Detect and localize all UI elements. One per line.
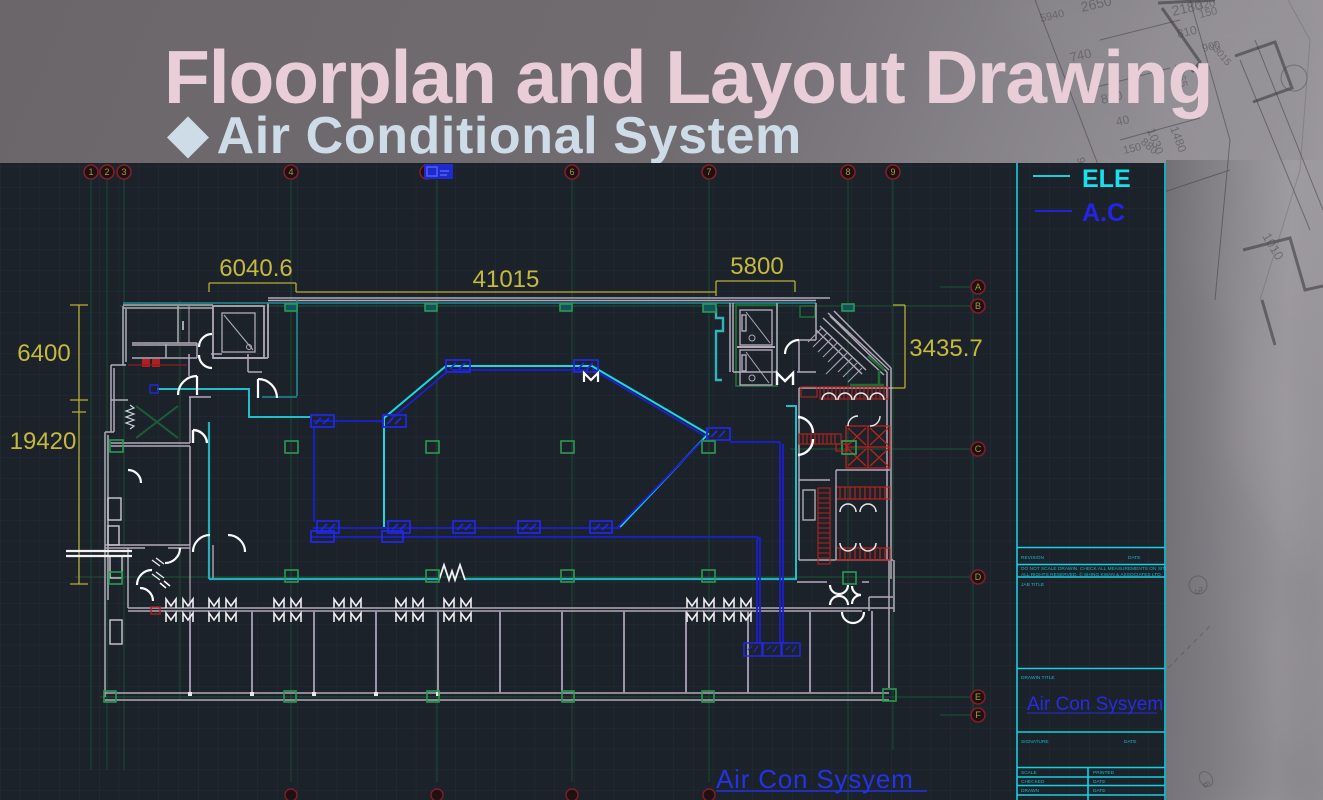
svg-text:5800: 5800 [730,253,783,280]
svg-text:DRAWN: DRAWN [1021,788,1039,794]
svg-text:ALL RIGHTS RESERVED. © SHING K: ALL RIGHTS RESERVED. © SHING KWAN & ASSO… [1021,571,1162,578]
svg-text:SIGNATURE: SIGNATURE [1021,739,1049,745]
svg-text:PRINTED: PRINTED [1093,770,1115,776]
svg-text:3: 3 [121,167,126,177]
svg-text:8: 8 [845,167,850,177]
svg-text:F: F [975,710,981,720]
svg-text:6040.6: 6040.6 [219,255,292,282]
svg-text:D: D [975,572,982,582]
svg-text:DO NOT SCALE DRAWIN. CHECK ALL: DO NOT SCALE DRAWIN. CHECK ALL MEASUREME… [1021,566,1166,572]
svg-text:1: 1 [88,167,93,177]
svg-text:DATE: DATE [1093,779,1105,785]
svg-text:19420: 19420 [10,428,77,455]
svg-text:A.C: A.C [1082,199,1125,227]
svg-text:7: 7 [706,167,711,177]
svg-text:JAB TITLE: JAB TITLE [1021,582,1044,588]
svg-text:Air Con Sysyem: Air Con Sysyem [1027,694,1163,715]
svg-text:ELE: ELE [1082,165,1131,193]
svg-text:DATE: DATE [1124,739,1136,745]
svg-text:3435.7: 3435.7 [909,335,982,362]
svg-text:DATE: DATE [1093,788,1105,794]
svg-text:6: 6 [569,167,574,177]
svg-text:DRAWIN TITLE: DRAWIN TITLE [1021,675,1055,681]
svg-text:4: 4 [288,167,293,177]
svg-text:DATE: DATE [1128,555,1140,561]
svg-text:E: E [975,692,981,702]
svg-text:6400: 6400 [17,340,70,367]
svg-text:C: C [975,444,982,454]
svg-text:B: B [975,301,981,311]
svg-text:REVISION: REVISION [1021,555,1044,561]
svg-text:9: 9 [890,167,895,177]
svg-text:2: 2 [104,167,109,177]
svg-text:Air Con Sysyem: Air Con Sysyem [716,764,914,794]
svg-text:A: A [975,282,981,292]
svg-text:CHECKED: CHECKED [1021,779,1045,785]
svg-text:41015: 41015 [473,266,540,293]
svg-text:SCALE: SCALE [1021,770,1037,776]
